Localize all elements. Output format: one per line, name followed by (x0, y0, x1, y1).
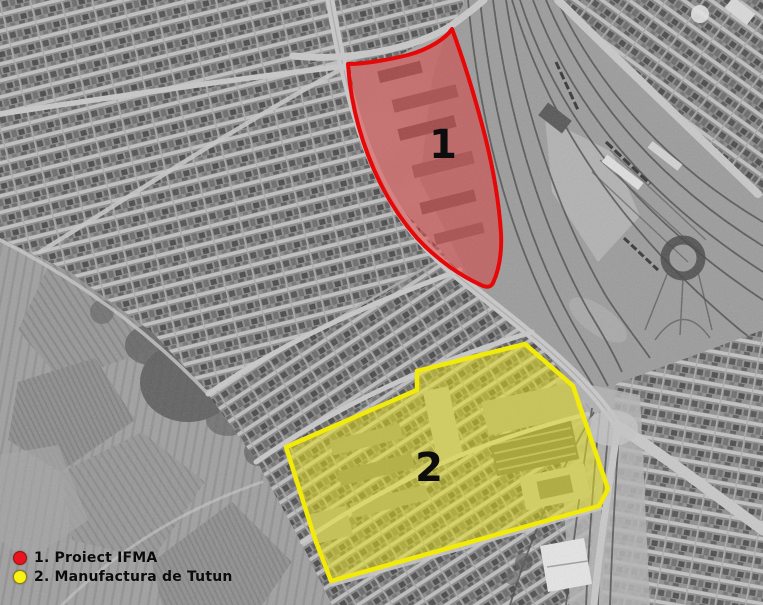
legend-label: 1. Proiect IFMA (34, 550, 157, 566)
yellow-dot-icon (13, 570, 27, 584)
aerial-photo-background (0, 0, 763, 605)
legend-item-proiect-ifma: 1. Proiect IFMA (13, 548, 233, 567)
legend-item-manufactura-de-tutun: 2. Manufactura de Tutun (13, 567, 233, 586)
legend-label: 2. Manufactura de Tutun (34, 569, 233, 585)
aerial-photo: 1 2 1. Proiect IFMA 2. Manufactura de Tu… (0, 0, 763, 605)
region-1-number-label: 1 (429, 125, 457, 165)
red-dot-icon (13, 551, 27, 565)
region-2-number-label: 2 (415, 448, 443, 488)
legend: 1. Proiect IFMA 2. Manufactura de Tutun (13, 548, 233, 586)
